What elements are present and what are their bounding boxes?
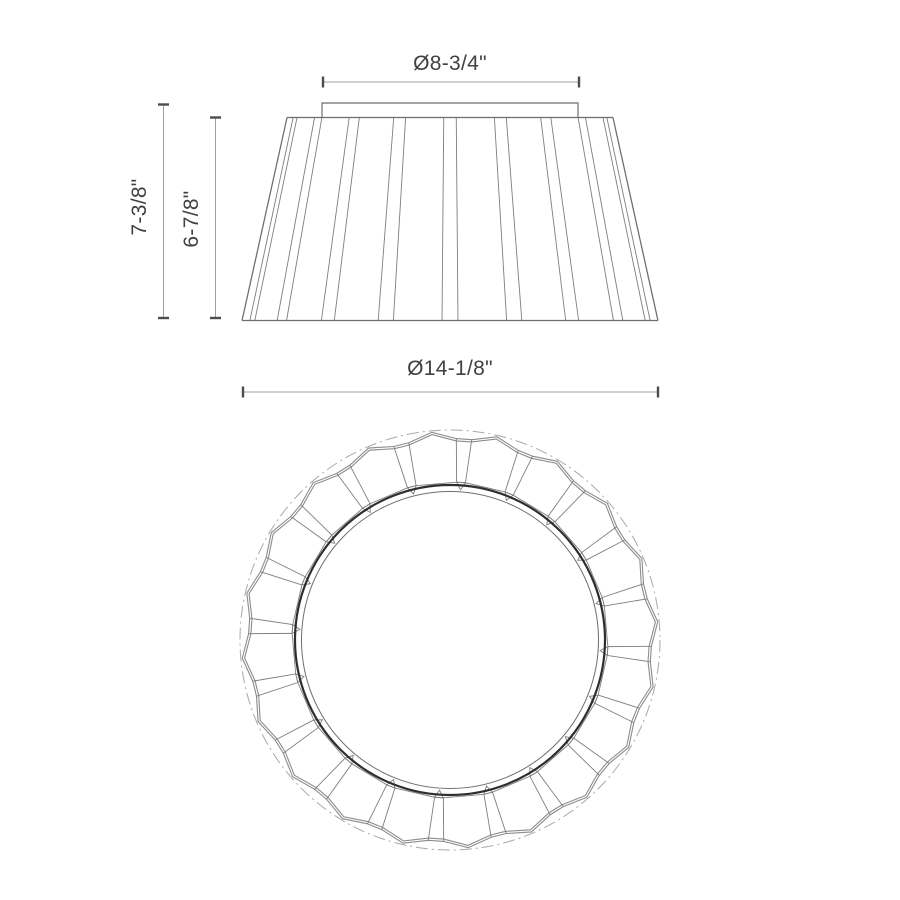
elevation-view (242, 103, 658, 321)
plan-view (240, 430, 660, 850)
cap-plate (322, 103, 578, 118)
dimension-label-shade-height: 6-7/8" (180, 190, 204, 247)
dimension-label-bottom-diameter: Ø14-1/8" (407, 357, 493, 381)
technical-drawing (0, 0, 900, 900)
dimension-lines (158, 77, 658, 398)
dimension-label-overall-height: 7-3/8" (128, 178, 152, 235)
dimension-label-top-diameter: Ø8-3/4" (413, 52, 487, 76)
drawing-canvas: Ø8-3/4" 7-3/8" 6-7/8" Ø14-1/8" (0, 0, 900, 900)
